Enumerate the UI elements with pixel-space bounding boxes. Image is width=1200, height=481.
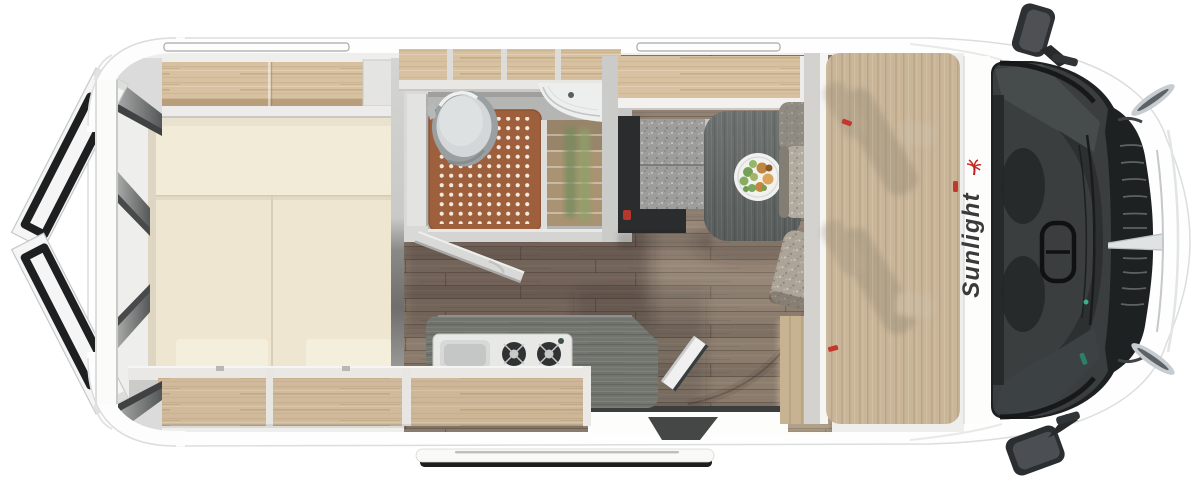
svg-text:Sunlight: Sunlight <box>958 192 985 298</box>
